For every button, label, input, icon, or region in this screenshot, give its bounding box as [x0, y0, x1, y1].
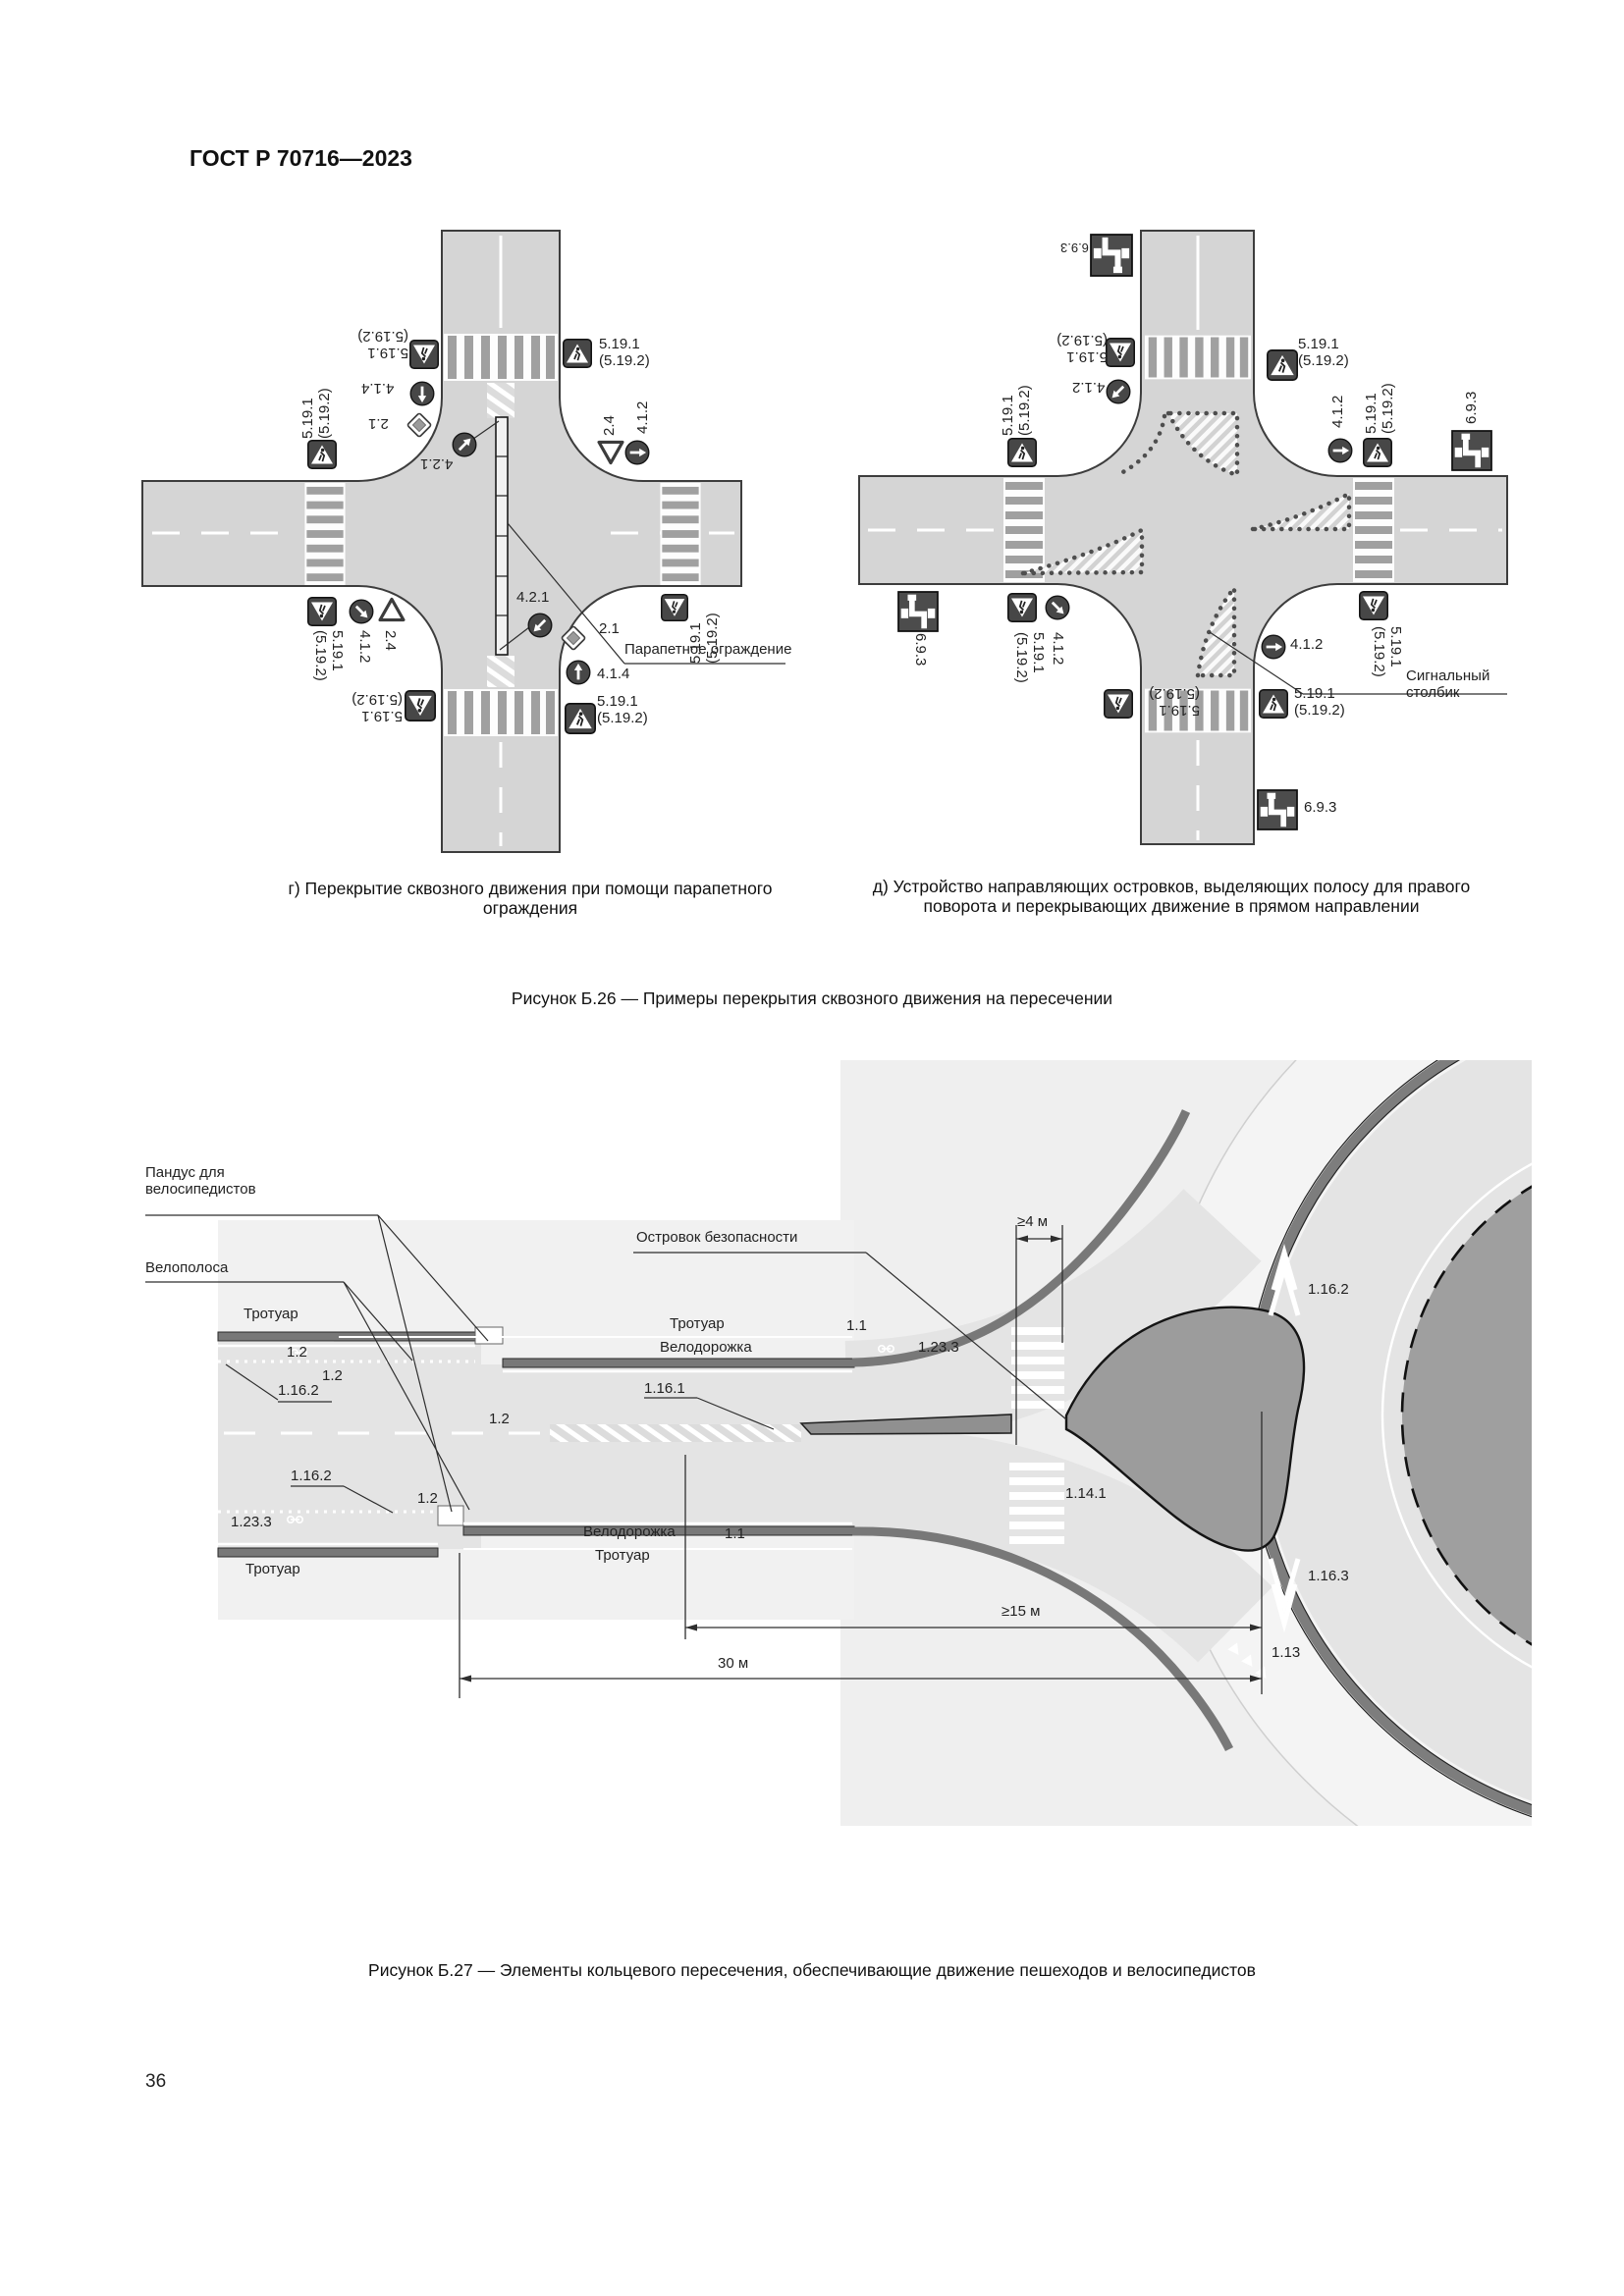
sign-label-5-19-1: 5.19.1 (5.19.2) [1298, 336, 1367, 369]
sign-label-2-4: 2.4 [382, 630, 399, 651]
pedestrian-crossing-sign-icon [308, 441, 336, 468]
marking-label-1-13: 1.13 [1272, 1644, 1300, 1661]
sign-label-5-19-1: 5.19.1 (5.19.2) [312, 630, 346, 695]
pedestrian-crossing-sign-icon [662, 595, 688, 621]
sign-label-4-1-2: 4.1.2 [356, 630, 373, 663]
dimension-label-4m: ≥4 м [1017, 1213, 1048, 1230]
pedestrian-crossing-sign-icon [308, 598, 336, 625]
marking-label-1-16-3: 1.16.3 [1308, 1568, 1349, 1584]
caption-b26-d: д) Устройство направляющих островков, вы… [862, 878, 1481, 917]
sign-label-4-1-4: 4.1.4 [361, 380, 394, 397]
pedestrian-crossing-sign-icon [564, 340, 591, 367]
sign-label-6-9-3: 6.9.3 [912, 633, 929, 666]
pedestrian-crossing-sign-icon [410, 341, 438, 368]
parapet-barrier [496, 417, 508, 655]
dimension-label-30m: 30 м [718, 1655, 748, 1672]
pedestrian-crossing-sign-icon [566, 704, 595, 733]
sign-label-4-1-2: 4.1.2 [1072, 379, 1105, 396]
document-page: ГОСТ Р 70716—2023 36 5.19.1 (5.19.2) 4.1… [0, 0, 1624, 2296]
median-hatch-marking [487, 656, 514, 687]
dimension-label-15m: ≥15 м [1001, 1603, 1040, 1620]
sign-label-5-19-1: 5.19.1 (5.19.2) [1043, 332, 1108, 365]
sign-label-5-19-1: 5.19.1 (5.19.2) [1135, 685, 1200, 719]
route-scheme-sign-icon [898, 592, 938, 631]
direction-sign-icon [567, 661, 590, 684]
marking-label-1-16-2: 1.16.2 [291, 1468, 332, 1484]
sign-label-4-1-4: 4.1.4 [597, 666, 629, 682]
bike-path-label: Велодорожка [583, 1523, 676, 1540]
turn-right-sign-icon [1262, 635, 1285, 659]
bike-lane-annotation: Велополоса [145, 1259, 228, 1276]
crosswalk-marking [1353, 478, 1394, 582]
page-number: 36 [145, 2071, 166, 2093]
sign-label-6-9-3: 6.9.3 [1463, 392, 1480, 424]
sign-label-5-19-1: 5.19.1 (5.19.2) [299, 374, 333, 439]
give-way-sign-icon [599, 442, 623, 462]
marking-label-1-2: 1.2 [287, 1344, 307, 1361]
sidewalk-label: Тротуар [670, 1315, 725, 1332]
pedestrian-crossing-sign-icon [1268, 350, 1297, 380]
bike-path-label: Велодорожка [660, 1339, 752, 1356]
sidewalk-label: Тротуар [245, 1561, 300, 1577]
crosswalk-marking [304, 483, 345, 585]
pedestrian-crossing-sign-icon [1107, 339, 1134, 366]
crosswalk-marking [444, 689, 558, 736]
route-scheme-sign-icon [1452, 431, 1491, 470]
marking-label-1-23-3: 1.23.3 [918, 1339, 959, 1356]
crosswalk-marking [1145, 336, 1251, 380]
turn-right-sign-icon [1102, 375, 1134, 407]
priority-road-sign-icon [407, 413, 432, 438]
sign-label-5-19-1: 5.19.1 (5.19.2) [1363, 369, 1396, 434]
pedestrian-crossing-sign-icon [1008, 439, 1036, 466]
ramp-annotation: Пандус для велосипедистов [145, 1164, 285, 1198]
direction-sign-icon [410, 382, 434, 405]
marking-label-1-2: 1.2 [489, 1411, 510, 1427]
bike-ramp-cut [475, 1327, 503, 1344]
safety-island-annotation: Островок безопасности [636, 1229, 797, 1246]
turn-right-sign-icon [1041, 591, 1073, 623]
sidewalk-label: Тротуар [595, 1547, 650, 1564]
signal-post-annotation: Сигнальный столбик [1406, 667, 1516, 701]
sign-label-5-19-1: 5.19.1 (5.19.2) [1294, 685, 1363, 719]
route-scheme-sign-icon [1091, 235, 1132, 276]
figure-b26-right-diagram [859, 231, 1507, 844]
marking-label-1-2: 1.2 [417, 1490, 438, 1507]
figure-b26-caption: Рисунок Б.26 — Примеры перекрытия сквозн… [0, 989, 1624, 1009]
sign-label-2-4: 2.4 [601, 415, 618, 436]
sign-label-5-19-1: 5.19.1 (5.19.2) [344, 328, 408, 361]
sign-label-5-19-1: 5.19.1 (5.19.2) [1000, 371, 1033, 436]
turn-right-sign-icon [1328, 439, 1352, 462]
crosswalk-marking [444, 334, 558, 381]
marking-label-1-1: 1.1 [846, 1317, 867, 1334]
pedestrian-crossing-sign-icon [1260, 690, 1287, 718]
turn-right-sign-icon [625, 441, 649, 464]
sign-label-4-1-2: 4.1.2 [1329, 396, 1346, 428]
pedestrian-crossing-sign-icon [1105, 690, 1132, 718]
sign-label-2-1: 2.1 [368, 415, 389, 432]
sidewalk-label: Тротуар [244, 1306, 298, 1322]
turn-right-sign-icon [345, 595, 377, 627]
diagram-graphics [0, 0, 1624, 2296]
marking-label-1-16-1: 1.16.1 [644, 1380, 685, 1397]
marking-label-1-14-1: 1.14.1 [1065, 1485, 1107, 1502]
sign-label-5-19-1: 5.19.1 (5.19.2) [599, 336, 668, 369]
sign-label-5-19-1: 5.19.1 (5.19.2) [338, 691, 403, 724]
sign-label-5-19-1: 5.19.1 (5.19.2) [1371, 626, 1404, 691]
sign-label-6-9-3: 6.9.3 [1060, 240, 1089, 254]
marking-label-1-1: 1.1 [725, 1525, 745, 1542]
sign-label-6-9-3: 6.9.3 [1304, 799, 1336, 816]
sign-label-5-19-1: 5.19.1 (5.19.2) [687, 599, 721, 664]
figure-b27-diagram [137, 900, 1624, 1931]
median-hatch-marking [487, 383, 514, 418]
crosswalk-marking [1003, 478, 1045, 582]
sign-label-5-19-1: 5.19.1 (5.19.2) [597, 693, 666, 726]
sign-label-4-2-1: 4.2.1 [420, 455, 453, 472]
pedestrian-crossing-sign-icon [1364, 439, 1391, 466]
pedestrian-crossing-sign-icon [406, 691, 435, 721]
pedestrian-crossing-sign-icon [1360, 592, 1387, 619]
route-scheme-sign-icon [1258, 790, 1297, 829]
figure-b26-left-diagram [142, 231, 785, 852]
sign-label-4-1-2: 4.1.2 [634, 401, 651, 434]
crosswalk-marking [660, 483, 700, 585]
sign-label-4-1-2: 4.1.2 [1050, 632, 1066, 665]
sign-label-2-1: 2.1 [599, 620, 620, 637]
sign-label-5-19-1: 5.19.1 (5.19.2) [1013, 632, 1047, 697]
sign-label-4-1-2: 4.1.2 [1290, 636, 1323, 653]
marking-label-1-23-3: 1.23.3 [231, 1514, 272, 1530]
standard-header: ГОСТ Р 70716—2023 [189, 145, 412, 172]
caption-b26-g: г) Перекрытие сквозного движения при пом… [265, 880, 795, 919]
marking-label-1-16-2: 1.16.2 [1308, 1281, 1349, 1298]
give-way-sign-icon [380, 599, 404, 619]
pedestrian-crossing-sign-icon [1008, 594, 1036, 621]
marking-label-1-16-2: 1.16.2 [278, 1382, 319, 1399]
marking-label-1-2: 1.2 [322, 1367, 343, 1384]
sign-label-4-2-1: 4.2.1 [516, 589, 549, 606]
figure-b27-caption: Рисунок Б.27 — Элементы кольцевого перес… [0, 1961, 1624, 1981]
